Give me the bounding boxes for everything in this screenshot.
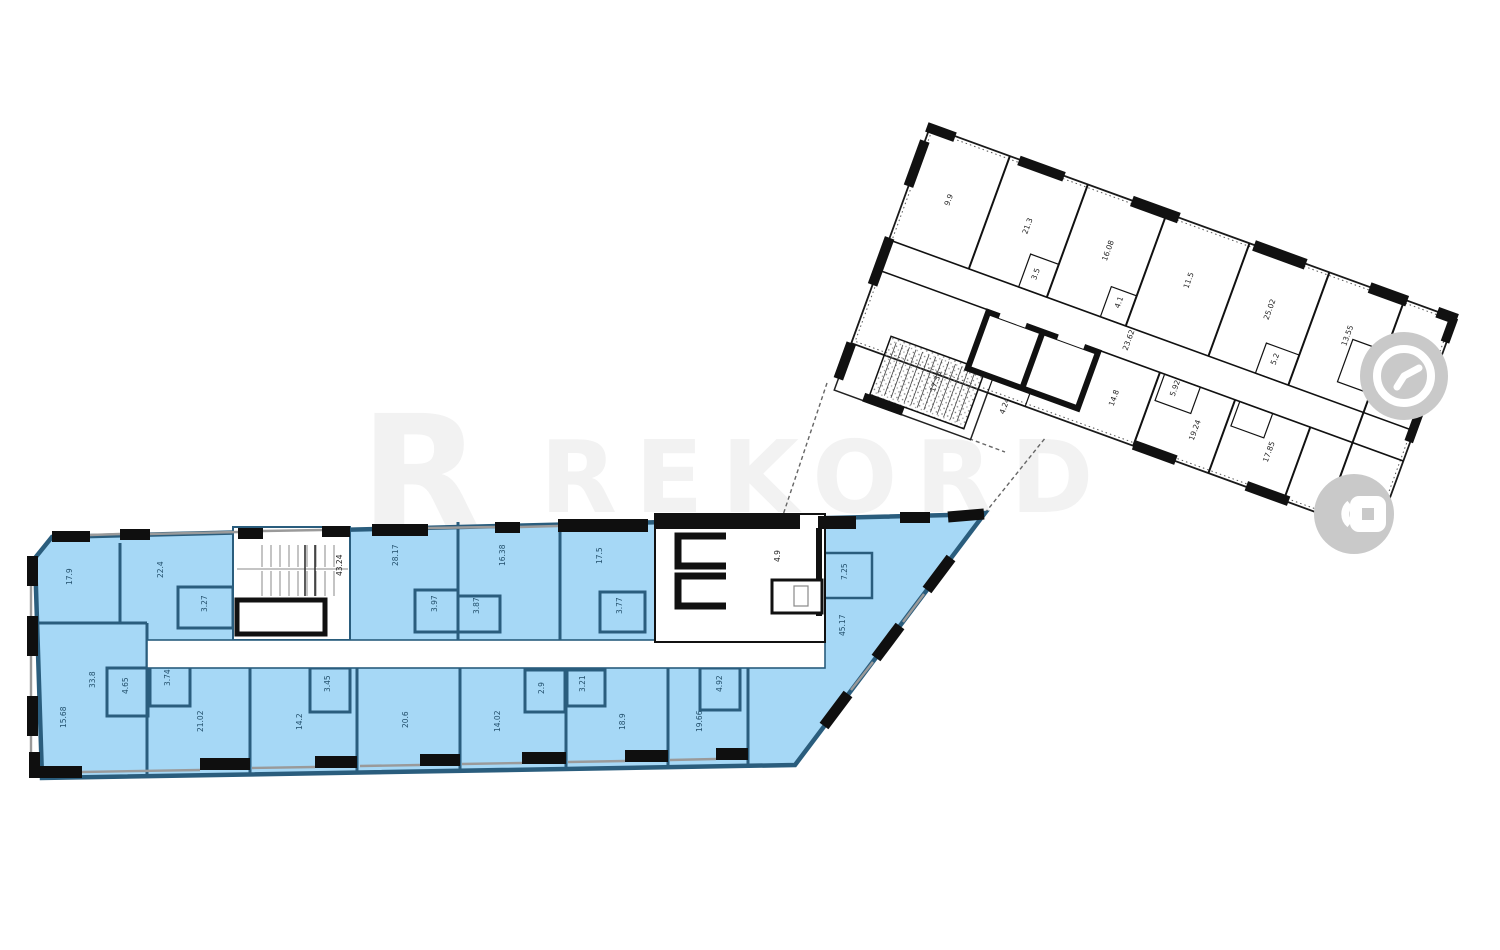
stairwell <box>233 527 350 640</box>
lock-icon[interactable] <box>1314 474 1394 554</box>
room-area-label: 14.2 <box>295 713 304 730</box>
clock-icon[interactable] <box>1360 332 1448 420</box>
room-area-label: 28.17 <box>391 544 400 566</box>
room-area-label: 4.9 <box>773 550 782 562</box>
highlighted-section-plan: 17.922.43.2743.2428.1716.3817.53.973.873… <box>27 512 985 778</box>
room-area-label: 4.65 <box>121 677 130 694</box>
room-area-label: 45.17 <box>838 614 847 636</box>
room-area-label: 4.24 <box>997 396 1011 415</box>
room-area-label: 17.9 <box>65 568 74 585</box>
room-area-label: 19.66 <box>695 710 704 732</box>
room-area-label: 3.74 <box>163 669 172 686</box>
room-area-label: 4.92 <box>715 675 724 692</box>
room-area-label: 7.25 <box>840 563 849 580</box>
room-area-label: 43.24 <box>335 554 344 576</box>
room-area-label: 2.9 <box>537 682 546 694</box>
stair-shaft-box <box>237 600 325 634</box>
room-area-label: 20.6 <box>401 711 410 728</box>
room-area-label: 3.87 <box>472 597 481 614</box>
floorplan-viewer: R REKORD <box>0 0 1500 950</box>
room-area-label: 33.8 <box>88 671 97 688</box>
room-area-label: 14.02 <box>493 710 502 732</box>
room-area-label: 3.21 <box>578 675 587 692</box>
room-area-label: 22.4 <box>156 561 165 578</box>
room-area-label: 16.38 <box>498 544 507 566</box>
room-area-label: 15.68 <box>59 706 68 728</box>
room-area-label: 3.97 <box>430 595 439 612</box>
room-area-label: 3.77 <box>615 597 624 614</box>
room-area-label: 18.9 <box>618 713 627 730</box>
room-area-label: 3.27 <box>200 595 209 612</box>
wc-room <box>772 580 822 613</box>
room-area-label: 21.02 <box>196 710 205 732</box>
floorplan-canvas: R REKORD <box>0 0 1500 950</box>
room-area-label: 17.5 <box>595 547 604 564</box>
room-area-label: 3.45 <box>323 675 332 692</box>
